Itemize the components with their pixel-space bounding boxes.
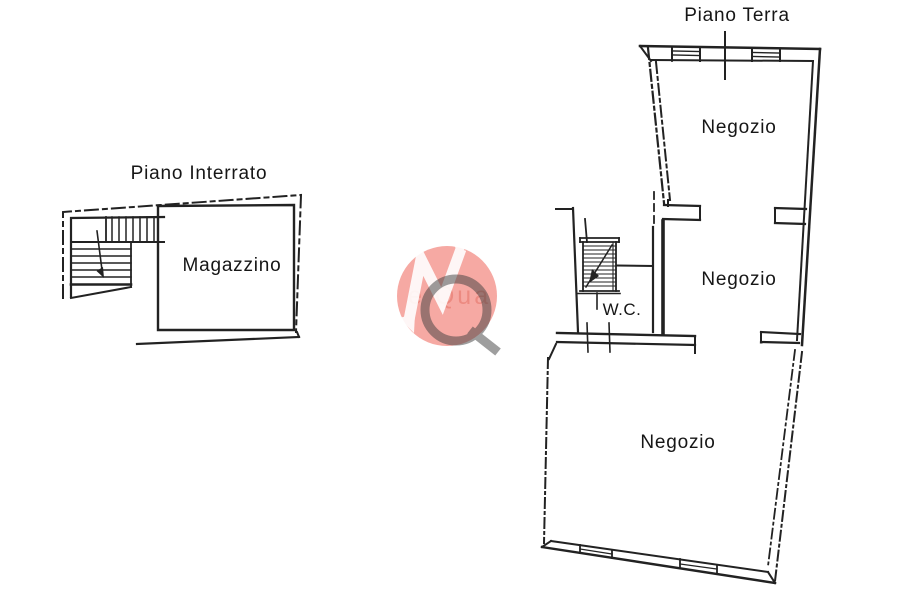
negozio3-outline [542, 350, 802, 583]
ground-staircase [578, 238, 620, 309]
magazzino-label: Magazzino [182, 255, 281, 277]
wc-label: W.C. [603, 300, 642, 320]
ground-title: Piano Terra [684, 5, 790, 27]
negozio3-label: Negozio [640, 432, 715, 454]
window-symbol-top-right [752, 48, 780, 61]
basement-staircase [71, 217, 164, 298]
negozio1-label: Negozio [701, 117, 776, 139]
wall-stub-right-upper [775, 208, 806, 224]
ground-floor-plan-drawing [542, 32, 820, 583]
wall-stub-right-lower [761, 332, 800, 343]
stair-arrow [97, 231, 102, 270]
basement-title: Piano Interrato [131, 163, 268, 185]
watermark-logo: e Qua [397, 238, 498, 352]
floorplan-page: e Qua [0, 0, 900, 600]
floorplan-drawing: e Qua [0, 0, 900, 600]
negozio2-label: Negozio [701, 269, 776, 291]
window-symbol-top-left [672, 47, 700, 62]
divider-wall-n1-n2 [663, 205, 700, 220]
stairwell-wc-block [549, 208, 695, 359]
